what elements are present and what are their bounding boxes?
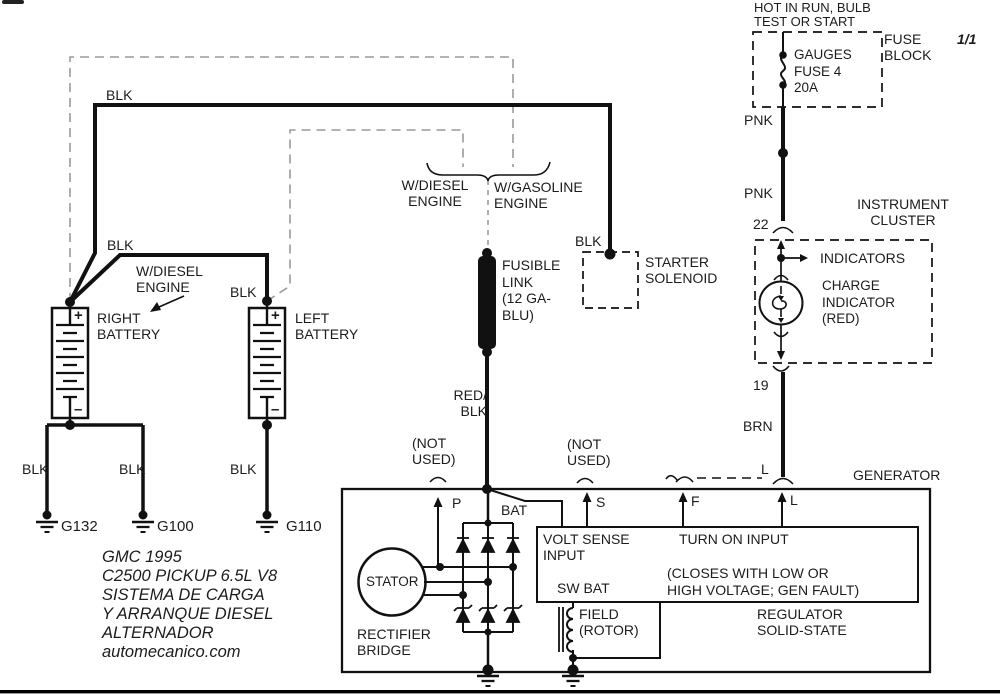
connector-p <box>430 478 446 483</box>
credit-text: GMC 1995 C2500 PICKUP 6.5L V8 SISTEMA DE… <box>102 548 277 662</box>
right-battery-label: RIGHT BATTERY <box>97 310 160 342</box>
wire-label-blk-g100: BLK <box>119 461 145 477</box>
main-wires <box>70 105 783 489</box>
connector-l <box>773 479 793 485</box>
connector-label-19: 19 <box>753 377 769 393</box>
stator-phase-wires <box>422 567 513 595</box>
fusible-link-icon <box>478 256 496 349</box>
field-coil-icon <box>567 608 573 652</box>
indicators-label: INDICATORS <box>820 250 905 266</box>
terminal-label-p: P <box>452 495 461 511</box>
wire-label-blk-top: BLK <box>106 87 132 103</box>
ground-label-g132: G132 <box>61 519 98 535</box>
terminal-label-l: L <box>790 492 798 508</box>
ground-icon-g132 <box>36 522 58 532</box>
connector-s <box>577 479 593 484</box>
wire-label-blk-leftbatt: BLK <box>230 284 256 300</box>
connector-22 <box>773 228 793 234</box>
ground-label-g100: G100 <box>157 519 194 535</box>
fuse-block-title: FUSE BLOCK <box>884 32 931 63</box>
fusible-link-label: FUSIBLE LINK (12 GA- BLU) <box>502 257 560 323</box>
not-used-label-p: (NOT USED) <box>412 435 456 467</box>
left-battery-label: LEFT BATTERY <box>295 310 358 342</box>
ground-icon-rectifier <box>477 676 499 686</box>
engine-split-diesel-label: W/DIESEL ENGINE <box>396 177 474 209</box>
connector-f <box>666 476 693 482</box>
ground-icon-g100 <box>132 522 154 532</box>
turn-on-label: TURN ON INPUT <box>679 531 789 547</box>
page-indicator: 1/1 <box>957 31 976 47</box>
closes-note-label: (CLOSES WITH LOW OR HIGH VOLTAGE; GEN FA… <box>667 565 859 599</box>
wire-label-blk-g110: BLK <box>230 461 256 477</box>
wire-label-pnk-1: PNK <box>744 112 773 128</box>
bottom-rule <box>0 690 1000 693</box>
instrument-cluster-title: INSTRUMENT CLUSTER <box>851 197 955 228</box>
ground-icon-field <box>562 676 584 686</box>
diesel-path-wire <box>267 130 463 301</box>
terminal-arrowheads <box>434 492 787 507</box>
stator-label: STATOR <box>366 574 419 591</box>
terminal-label-f: F <box>691 493 700 509</box>
diesel-note-label: W/DIESEL ENGINE <box>136 263 203 295</box>
bat-label: BAT <box>501 502 527 518</box>
not-used-label-s: (NOT USED) <box>567 436 611 468</box>
corner-mark <box>2 0 24 4</box>
ground-label-g110: G110 <box>286 519 322 535</box>
wire-label-brn: BRN <box>743 418 773 434</box>
charge-indicator-label: CHARGE INDICATOR (RED) <box>822 278 895 328</box>
wire-label-red-blk: RED/ BLK <box>440 387 487 419</box>
starter-solenoid-box <box>583 252 638 308</box>
hot-feed-label: HOT IN RUN, BULB TEST OR START <box>754 1 871 28</box>
right-battery-plus: + <box>74 309 83 323</box>
right-battery-minus: – <box>74 403 82 417</box>
field-core <box>559 607 563 652</box>
wiring-diagram-page: HOT IN RUN, BULB TEST OR START FUSE BLOC… <box>0 0 1000 696</box>
wire-label-blk-mid: BLK <box>107 237 133 253</box>
generator-title: GENERATOR <box>853 467 940 483</box>
wire-label-blk-solenoid: BLK <box>575 233 601 249</box>
connector-19 <box>773 366 789 371</box>
terminal-label-s: S <box>596 494 605 510</box>
starter-solenoid-label: STARTER SOLENOID <box>645 254 717 286</box>
engine-split-gasoline-label: W/GASOLINE ENGINE <box>494 179 583 211</box>
ground-icon-g110 <box>256 522 278 532</box>
fuse-icon <box>781 32 785 107</box>
sw-bat-label: SW BAT <box>557 580 610 596</box>
connector-label-l: L <box>761 461 769 477</box>
volt-sense-label: VOLT SENSE INPUT <box>543 531 630 563</box>
connector-label-22: 22 <box>753 216 769 232</box>
left-battery-minus: – <box>271 403 279 417</box>
rectifier-bridge-label: RECTIFIER BRIDGE <box>357 626 431 658</box>
regulator-label: REGULATOR SOLID-STATE <box>757 606 847 638</box>
left-battery-plus: + <box>271 309 280 323</box>
wire-label-blk-g132: BLK <box>22 461 48 477</box>
wire-label-pnk-2: PNK <box>744 185 773 201</box>
field-rotor-label: FIELD (ROTOR) <box>579 606 639 638</box>
lamp-filament <box>773 286 787 317</box>
fuse-label: GAUGES FUSE 4 20A <box>794 47 852 97</box>
